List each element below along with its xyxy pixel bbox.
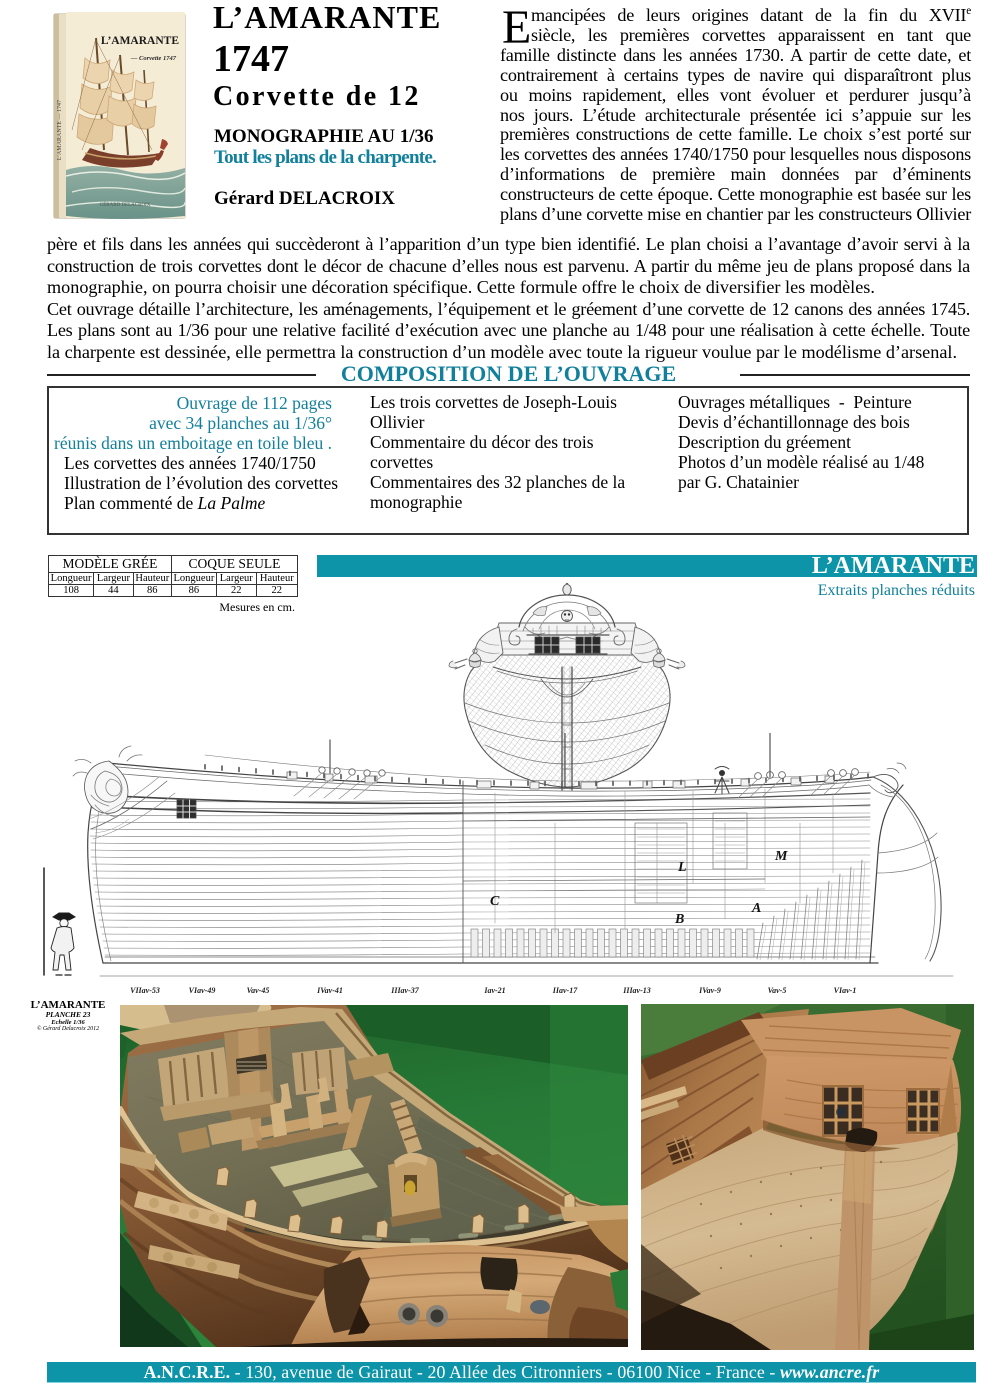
svg-text:VIav-49: VIav-49	[189, 986, 216, 995]
svg-text:IIIav-13: IIIav-13	[622, 986, 651, 995]
svg-text:IVav-9: IVav-9	[698, 986, 721, 995]
svg-text:Iav-21: Iav-21	[483, 986, 505, 995]
svg-text:VIav-1: VIav-1	[834, 986, 857, 995]
svg-text:L: L	[677, 860, 687, 875]
svg-text:— Corvette 1747: — Corvette 1747	[130, 55, 177, 62]
svg-text:L’AMARANTE — 1747: L’AMARANTE — 1747	[57, 100, 63, 160]
svg-text:M: M	[774, 849, 788, 864]
svg-text:IVav-41: IVav-41	[316, 986, 343, 995]
svg-text:IIIav-37: IIIav-37	[390, 986, 420, 995]
svg-text:VIIav-53: VIIav-53	[130, 986, 160, 995]
svg-text:C: C	[490, 894, 500, 909]
svg-text:A: A	[751, 901, 761, 916]
svg-text:Vav-45: Vav-45	[247, 986, 270, 995]
svg-text:IIav-17: IIav-17	[552, 986, 578, 995]
svg-text:B: B	[674, 912, 684, 927]
svg-text:Vav-5: Vav-5	[768, 986, 787, 995]
svg-text:GÉRARD DELACROIX: GÉRARD DELACROIX	[100, 202, 151, 208]
svg-text:L’AMARANTE: L’AMARANTE	[101, 35, 179, 47]
